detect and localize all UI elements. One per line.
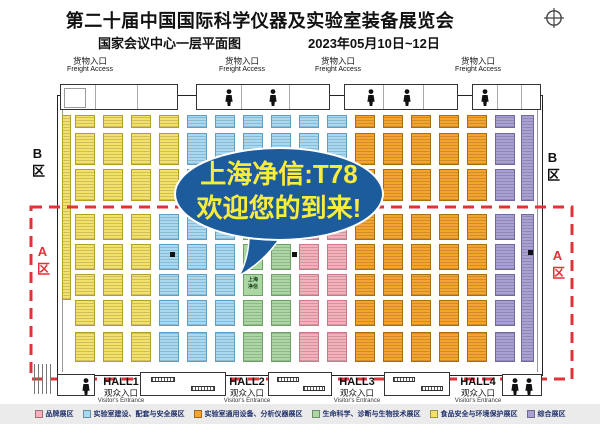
booth (383, 244, 403, 270)
booth (243, 115, 263, 128)
legend-label: 综合展区 (538, 409, 566, 419)
booth (159, 332, 179, 362)
bottom-building (268, 372, 332, 396)
pillar (528, 250, 533, 255)
venue-label: 国家会议中心一层平面图 (98, 33, 241, 52)
visitor-entrance-cn: 观众入口 (334, 389, 380, 399)
escalator-icon (151, 377, 175, 382)
booth (495, 115, 515, 128)
legend-item-brand: 品牌展区 (35, 409, 74, 419)
booth (495, 244, 515, 270)
booth (187, 244, 207, 270)
booth (187, 115, 207, 128)
freight-access-en: Freight Access (315, 66, 361, 74)
zone-label-b-right: B区 (546, 150, 559, 184)
person-icon (269, 89, 277, 106)
legend-swatch-life (312, 410, 320, 418)
booth (439, 115, 459, 128)
booth (467, 169, 487, 201)
escalator-icon (393, 377, 415, 382)
booth (75, 300, 95, 326)
legend-swatch-brand (35, 410, 43, 418)
freight-access-en: Freight Access (219, 66, 265, 74)
booth-label: 上海净信 (247, 275, 259, 291)
booth (131, 115, 151, 128)
booth (383, 300, 403, 326)
hall-label-hall1: HALL1观众入口Visitor's Entrance (98, 376, 144, 405)
booth (521, 214, 534, 362)
hall-name: HALL1 (98, 376, 144, 389)
person-icon (225, 89, 233, 106)
booth (243, 332, 263, 362)
legend-swatch-food (430, 410, 438, 418)
booth (411, 274, 431, 296)
booth (439, 332, 459, 362)
booth (75, 115, 95, 128)
booth-label: 上海和信 (247, 245, 259, 261)
booth (355, 244, 375, 270)
booth (495, 274, 515, 296)
booth (131, 244, 151, 270)
booth (271, 332, 291, 362)
booth (383, 274, 403, 296)
booth (103, 332, 123, 362)
booth (327, 274, 347, 296)
booth (103, 244, 123, 270)
bottom-building (502, 374, 542, 396)
freight-access-en: Freight Access (67, 66, 113, 74)
escalator-icon (277, 377, 299, 382)
booth (327, 244, 347, 270)
booth (299, 332, 319, 362)
person-icon (511, 378, 519, 395)
booth (411, 300, 431, 326)
top-building (196, 84, 330, 110)
booth (383, 115, 403, 128)
booth (159, 133, 179, 165)
booth (299, 274, 319, 296)
booth (439, 214, 459, 240)
booth (383, 214, 403, 240)
booth-上海和信: 上海和信 (243, 244, 263, 270)
hall-label-hall4: HALL4观众入口Visitor's Entrance (455, 376, 501, 405)
booth (62, 115, 71, 300)
booth (215, 115, 235, 128)
floor-plan-page: 第二十届中国国际科学仪器及实验室装备展览会 国家会议中心一层平面图 2023年0… (0, 0, 600, 424)
legend-label: 品牌展区 (46, 409, 74, 419)
booth (411, 133, 431, 165)
booth (131, 332, 151, 362)
booth (355, 115, 375, 128)
freight-access-label: 货物入口Freight Access (219, 56, 265, 75)
legend-label: 生命科学、诊断与生物技术展区 (323, 409, 421, 419)
legend-swatch-lab (83, 410, 91, 418)
zone-label-b-left: B区 (31, 146, 44, 180)
booth (159, 214, 179, 240)
visitor-entrance-cn: 观众入口 (224, 389, 270, 399)
bottom-building (384, 372, 450, 396)
legend-item-comprehensive: 综合展区 (527, 409, 566, 419)
booth (355, 332, 375, 362)
booth (131, 169, 151, 201)
freight-access-cn: 货物入口 (67, 56, 113, 66)
escalator-icon (303, 386, 325, 391)
booth (411, 115, 431, 128)
booth (75, 133, 95, 165)
booth (103, 300, 123, 326)
hall-name: HALL2 (224, 376, 270, 389)
legend-item-food: 食品安全与环境保护展区 (430, 409, 518, 419)
booth (327, 332, 347, 362)
booth (271, 274, 291, 296)
booth (439, 274, 459, 296)
bottom-building (140, 372, 226, 396)
booth (411, 169, 431, 201)
legend-swatch-comprehensive (527, 410, 535, 418)
visitor-entrance-cn: 观众入口 (455, 389, 501, 399)
booth-上海净信: 上海净信 (243, 274, 263, 296)
booth (355, 274, 375, 296)
zone-label-a-right: A区 (551, 248, 564, 282)
person-icon (403, 89, 411, 106)
booth (383, 332, 403, 362)
page-title: 第二十届中国国际科学仪器及实验室装备展览会 (50, 7, 470, 33)
booth (131, 274, 151, 296)
date-label: 2023年05月10日~12日 (308, 33, 440, 52)
booth (75, 244, 95, 270)
booth (495, 169, 515, 201)
legend-bar: 品牌展区实验室建设、配套与安全展区实验室通用设备、分析仪器展区生命科学、诊断与生… (0, 404, 600, 424)
booth (355, 300, 375, 326)
booth (299, 115, 319, 128)
booth (467, 274, 487, 296)
person-icon (367, 89, 375, 106)
booth (243, 300, 263, 326)
booth (103, 274, 123, 296)
booth (131, 300, 151, 326)
freight-access-label: 货物入口Freight Access (315, 56, 361, 75)
booth (439, 244, 459, 270)
booth (495, 300, 515, 326)
top-building (344, 84, 458, 110)
booth (383, 169, 403, 201)
top-building (60, 84, 178, 110)
booth (411, 244, 431, 270)
booth (159, 169, 179, 201)
person-icon (481, 89, 489, 106)
booth (75, 169, 95, 201)
freight-access-cn: 货物入口 (455, 56, 501, 66)
booth (467, 115, 487, 128)
booth (495, 332, 515, 362)
booth (159, 115, 179, 128)
booth (467, 300, 487, 326)
freight-access-en: Freight Access (455, 66, 501, 74)
booth (131, 214, 151, 240)
hall-name: HALL3 (334, 376, 380, 389)
booth (411, 332, 431, 362)
booth (131, 133, 151, 165)
booth (299, 244, 319, 270)
legend-item-life: 生命科学、诊断与生物技术展区 (312, 409, 421, 419)
legend-label: 食品安全与环境保护展区 (441, 409, 518, 419)
booth (495, 133, 515, 165)
booth (439, 300, 459, 326)
booth (103, 214, 123, 240)
booth (327, 300, 347, 326)
person-icon (82, 378, 90, 395)
escalator-icon (191, 386, 215, 391)
booth (215, 300, 235, 326)
freight-access-label: 货物入口Freight Access (455, 56, 501, 75)
freight-access-cn: 货物入口 (315, 56, 361, 66)
booth (439, 133, 459, 165)
booth (187, 300, 207, 326)
booth (75, 214, 95, 240)
bottom-building (57, 374, 95, 396)
booth (467, 133, 487, 165)
booth (159, 274, 179, 296)
booth (215, 244, 235, 270)
booth (383, 133, 403, 165)
legend-swatch-instrument (194, 410, 202, 418)
booth (521, 115, 534, 201)
legend-label: 实验室通用设备、分析仪器展区 (205, 409, 303, 419)
booth (215, 332, 235, 362)
booth (467, 214, 487, 240)
bubble-line2: 欢迎您的到来! (197, 193, 362, 223)
bubble-text: 上海净信:T78 欢迎您的到来! (180, 158, 378, 226)
booth (159, 244, 179, 270)
right-wall-line (537, 98, 538, 372)
booth (75, 332, 95, 362)
booth (271, 300, 291, 326)
booth (411, 214, 431, 240)
booth (187, 332, 207, 362)
booth (327, 115, 347, 128)
bubble-line1: 上海净信:T78 (200, 159, 357, 189)
hall-name: HALL4 (455, 376, 501, 389)
booth (467, 244, 487, 270)
legend-item-lab: 实验室建设、配套与安全展区 (83, 409, 185, 419)
booth (271, 115, 291, 128)
booth (103, 115, 123, 128)
booth (159, 300, 179, 326)
booth (75, 274, 95, 296)
legend-item-instrument: 实验室通用设备、分析仪器展区 (194, 409, 303, 419)
booth (467, 332, 487, 362)
escalator-icon (421, 386, 443, 391)
hall-label-hall2: HALL2观众入口Visitor's Entrance (224, 376, 270, 405)
visitor-entrance-cn: 观众入口 (98, 389, 144, 399)
booth (495, 214, 515, 240)
booth (299, 300, 319, 326)
stairs-icon (34, 364, 54, 394)
booth (439, 169, 459, 201)
pillar (292, 252, 297, 257)
booth (215, 274, 235, 296)
legend-label: 实验室建设、配套与安全展区 (94, 409, 185, 419)
booth (187, 274, 207, 296)
booth (103, 169, 123, 201)
hall-label-hall3: HALL3观众入口Visitor's Entrance (334, 376, 380, 405)
pillar (170, 252, 175, 257)
person-icon (525, 378, 533, 395)
booth (103, 133, 123, 165)
compass-icon (543, 7, 565, 29)
freight-access-cn: 货物入口 (219, 56, 265, 66)
top-building (472, 84, 541, 110)
freight-access-label: 货物入口Freight Access (67, 56, 113, 75)
booth (271, 244, 291, 270)
zone-label-a-left: A区 (36, 244, 49, 278)
